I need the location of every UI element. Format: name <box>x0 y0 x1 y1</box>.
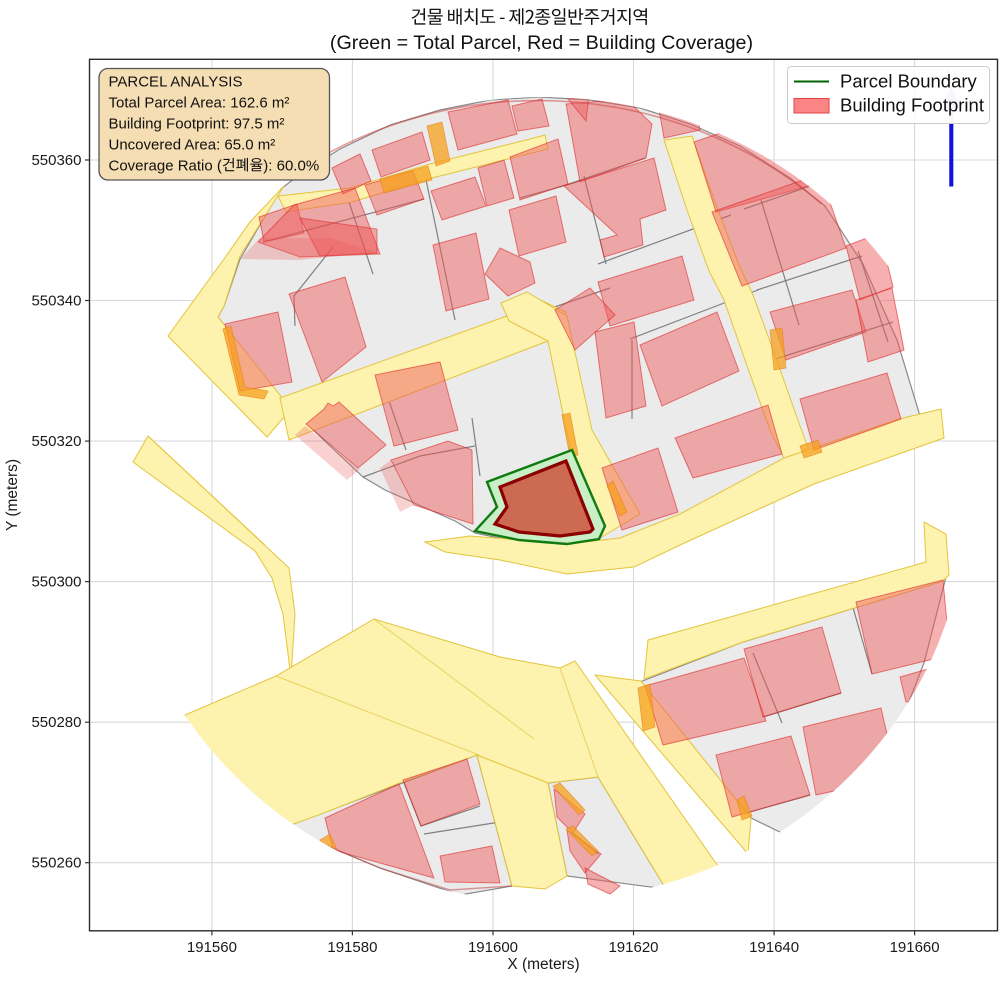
svg-text:550280: 550280 <box>31 714 81 731</box>
svg-text:Building Footprint: 97.5 m²: Building Footprint: 97.5 m² <box>109 115 285 132</box>
svg-text:(Green = Total Parcel, Red = B: (Green = Total Parcel, Red = Building Co… <box>330 32 753 54</box>
svg-text:191660: 191660 <box>890 939 940 956</box>
svg-text:191640: 191640 <box>749 939 799 956</box>
svg-text:191560: 191560 <box>187 939 237 956</box>
svg-text:Parcel Boundary: Parcel Boundary <box>840 71 978 92</box>
svg-text:Coverage Ratio (: Coverage Ratio ( <box>109 157 222 174</box>
svg-text:X (meters): X (meters) <box>507 956 579 973</box>
svg-text:): 60.0%: ): 60.0% <box>263 157 319 174</box>
svg-text:191580: 191580 <box>327 939 377 956</box>
svg-text:Uncovered Area: 65.0 m²: Uncovered Area: 65.0 m² <box>109 136 276 153</box>
svg-text:PARCEL ANALYSIS: PARCEL ANALYSIS <box>109 74 243 91</box>
svg-text:Y (meters): Y (meters) <box>4 459 21 531</box>
svg-text:550260: 550260 <box>31 855 81 872</box>
svg-text:Building Footprint: Building Footprint <box>840 95 984 116</box>
svg-text:550300: 550300 <box>31 574 81 591</box>
svg-text:550320: 550320 <box>31 433 81 450</box>
svg-text:550360: 550360 <box>31 152 81 169</box>
svg-text:550340: 550340 <box>31 293 81 310</box>
svg-text:191620: 191620 <box>608 939 658 956</box>
svg-text:191600: 191600 <box>468 939 518 956</box>
svg-text:Total Parcel Area: 162.6 m²: Total Parcel Area: 162.6 m² <box>109 95 290 112</box>
